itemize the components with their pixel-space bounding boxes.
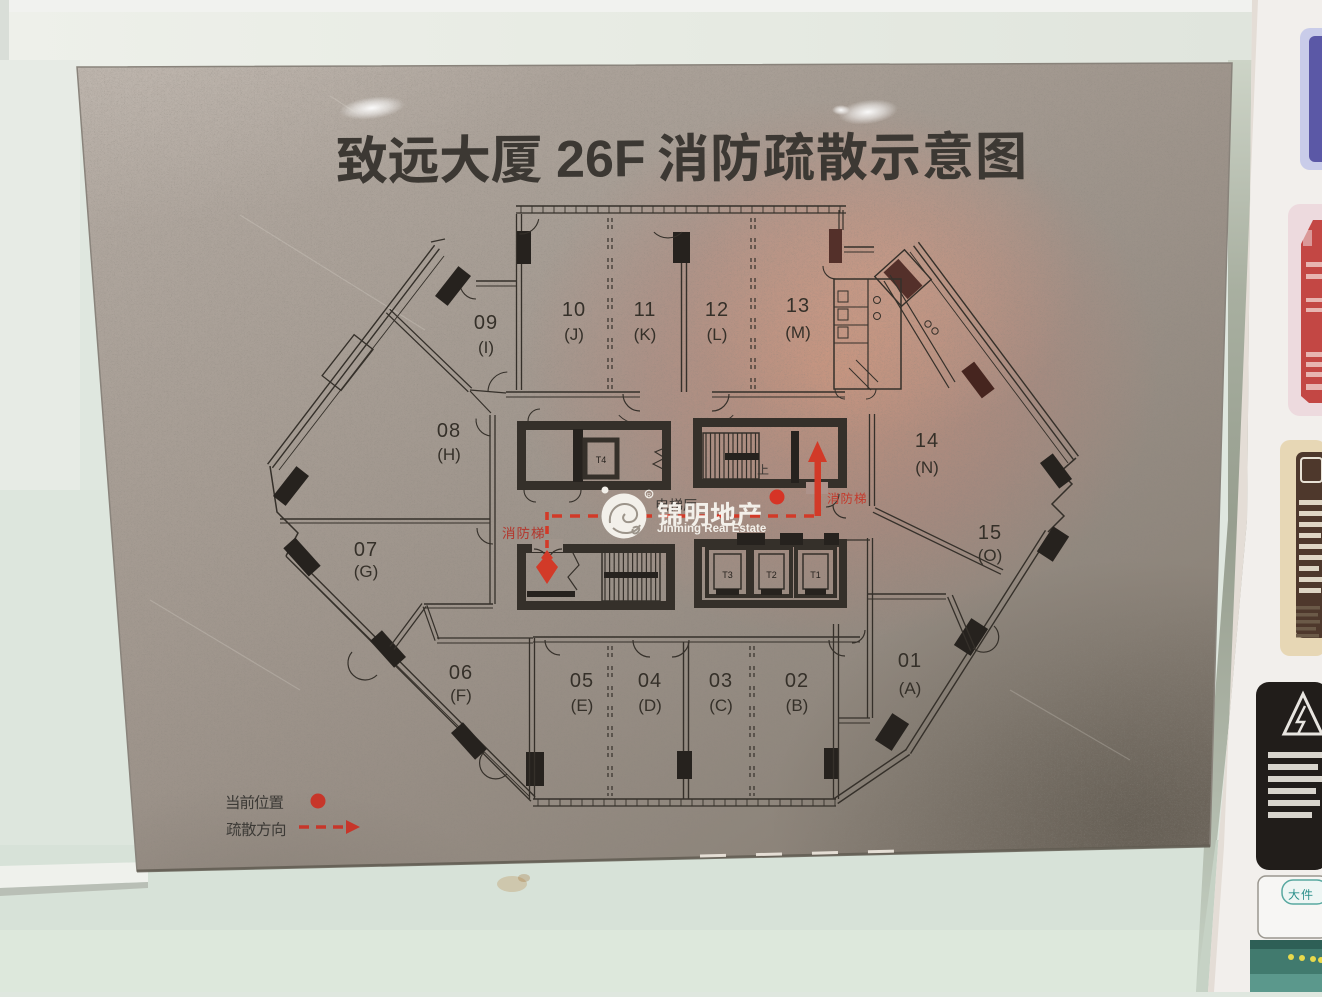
svg-text:(D): (D): [638, 696, 662, 715]
svg-text:13: 13: [786, 295, 810, 317]
svg-text:12: 12: [705, 299, 729, 321]
svg-text:(I): (I): [478, 338, 494, 357]
svg-text:T4: T4: [596, 455, 607, 465]
svg-text:(H): (H): [437, 445, 461, 464]
svg-text:(F): (F): [450, 686, 472, 705]
svg-text:11: 11: [634, 299, 657, 321]
svg-text:05: 05: [570, 670, 594, 692]
svg-text:(N): (N): [915, 458, 939, 477]
svg-text:09: 09: [474, 312, 498, 334]
svg-text:(J): (J): [564, 325, 584, 344]
svg-text:(L): (L): [707, 325, 728, 344]
svg-text:Jinming Real Estate: Jinming Real Estate: [657, 523, 766, 535]
svg-text:07: 07: [354, 539, 378, 561]
svg-text:01: 01: [898, 650, 922, 672]
svg-text:(B): (B): [786, 696, 809, 715]
svg-text:02: 02: [785, 670, 809, 692]
svg-text:(O): (O): [978, 546, 1003, 565]
svg-text:10: 10: [562, 299, 586, 321]
svg-text:14: 14: [915, 430, 939, 452]
svg-text:(M): (M): [785, 323, 810, 342]
svg-text:06: 06: [449, 662, 473, 684]
svg-text:T1: T1: [810, 570, 821, 580]
svg-text:08: 08: [437, 420, 461, 442]
svg-text:T2: T2: [766, 570, 777, 580]
svg-text:(C): (C): [709, 696, 733, 715]
svg-text:15: 15: [978, 522, 1002, 544]
svg-text:T3: T3: [722, 570, 733, 580]
svg-text:03: 03: [709, 670, 733, 692]
svg-text:R: R: [647, 493, 651, 499]
svg-text:(G): (G): [354, 562, 379, 581]
svg-text:(A): (A): [899, 679, 922, 698]
svg-text:26F: 26F: [556, 130, 646, 189]
svg-text:(E): (E): [571, 696, 594, 715]
svg-text:04: 04: [638, 670, 662, 692]
svg-text:(K): (K): [634, 325, 657, 344]
